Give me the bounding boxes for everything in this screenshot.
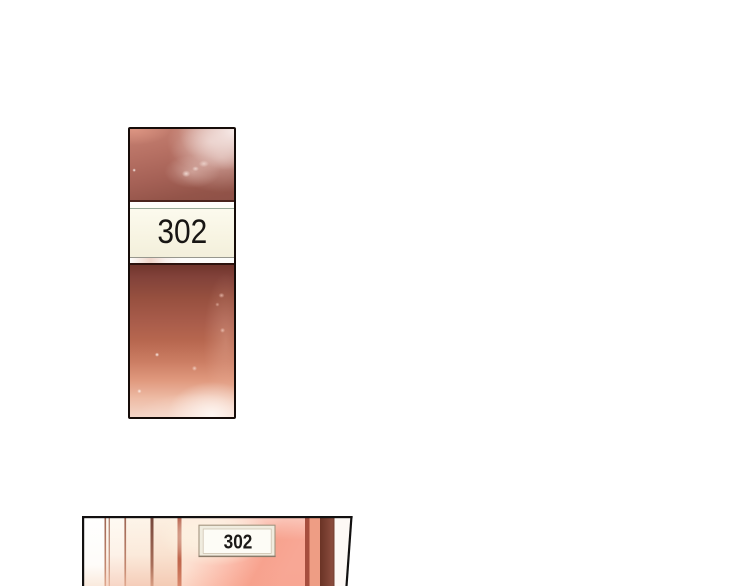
- svg-text:302: 302: [224, 530, 253, 553]
